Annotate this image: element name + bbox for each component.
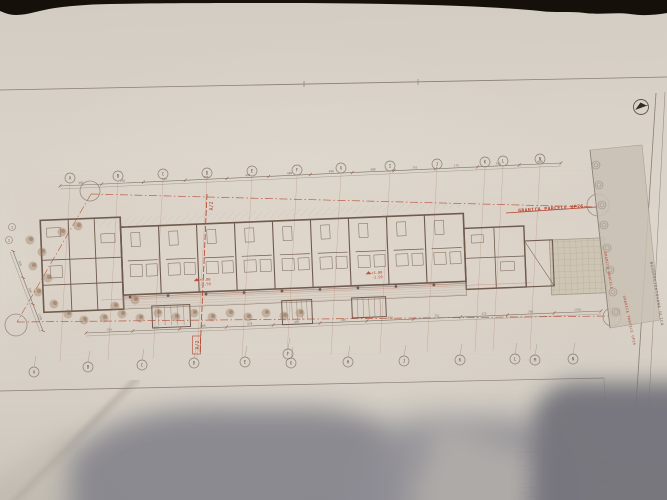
level-down-text: -1.50 — [200, 282, 211, 286]
unit-partition-wall — [386, 217, 389, 285]
line — [86, 311, 601, 333]
grid-line — [108, 182, 118, 360]
dim-number: 488 — [370, 167, 376, 171]
room-wall — [128, 260, 158, 261]
stair-step — [357, 298, 358, 318]
axis-stub — [88, 351, 90, 362]
stair-step — [292, 300, 293, 320]
parcel-boundary-label: GRANICA PARCELE UP26 — [506, 204, 596, 215]
sidewalk-hatch-band — [95, 201, 460, 227]
dim-number: 751 — [412, 165, 418, 169]
grid-line — [427, 170, 437, 352]
axis-stub — [535, 344, 537, 355]
bed-symbol — [321, 225, 331, 239]
room-wall — [280, 254, 310, 255]
bed-symbol — [207, 229, 217, 243]
axis-label-bottom: G — [290, 361, 293, 366]
north-arrow-icon — [634, 100, 649, 115]
dim-number: 490 — [294, 320, 300, 324]
bathroom — [358, 255, 370, 267]
dim-number: 350 — [78, 181, 84, 185]
tree-symbol — [61, 229, 65, 233]
axis-label-bottom: N — [572, 357, 575, 362]
axis-label-top: L — [502, 159, 505, 164]
tree-symbol — [134, 297, 138, 301]
room-wall — [166, 258, 196, 259]
bathroom — [168, 263, 180, 275]
tree-symbol — [32, 263, 36, 267]
axis-label-bottom: B — [87, 365, 90, 370]
tree-symbol — [37, 289, 41, 293]
grid-line — [287, 176, 297, 356]
dim-tick — [21, 276, 25, 280]
room-wall — [356, 251, 386, 252]
axis-stub — [404, 345, 406, 356]
tree-symbol — [283, 313, 287, 317]
dim-number: 1750 — [574, 308, 581, 312]
stair-step — [183, 305, 184, 325]
axis-label-top: B — [117, 174, 120, 179]
axis-stub — [515, 343, 517, 354]
tree-symbol — [121, 311, 125, 315]
column — [167, 294, 170, 297]
room-wall — [242, 255, 272, 256]
bathroom — [244, 260, 256, 272]
section-label-bottom: A/2 — [195, 340, 201, 349]
column — [319, 288, 322, 291]
hand-shadow-right — [533, 382, 667, 500]
bathroom — [298, 258, 309, 270]
bathroom — [336, 256, 347, 268]
stair-step — [307, 300, 308, 320]
axis-label-bottom: L — [514, 357, 517, 362]
photo-of-plan: 3507504934884904884904887511757569887504… — [0, 0, 667, 500]
stair-step — [164, 305, 165, 325]
bed-symbol — [131, 232, 141, 246]
dim-number: 978 — [388, 316, 394, 320]
axis-label-top: G — [340, 166, 343, 171]
axis-stub — [573, 343, 575, 354]
dim-number: 750 — [120, 179, 126, 183]
unit-partition-wall — [424, 215, 427, 283]
bed-symbol — [169, 231, 179, 245]
bed-symbol — [359, 223, 369, 237]
bed-symbol — [435, 220, 445, 234]
section-label-top: A/2 — [209, 201, 215, 210]
dim-number: 380 — [27, 287, 33, 293]
dim-number: 175 — [481, 312, 487, 316]
column — [281, 290, 284, 293]
column — [205, 293, 208, 296]
axis-stub — [34, 356, 36, 367]
axis-label-top: C — [162, 172, 165, 177]
dim-number: 978 — [247, 322, 253, 326]
level-marker-1: +1.00 -1.50 — [194, 278, 211, 287]
axis-label-top: K — [484, 160, 487, 165]
stair-step — [374, 297, 375, 317]
grid-line — [242, 177, 252, 357]
axis-label-top: J — [436, 162, 439, 167]
axis-label-bottom: M — [534, 358, 537, 363]
tree-symbol — [77, 223, 81, 227]
tree-symbol — [29, 237, 33, 241]
axis-label-bottom: F — [287, 352, 290, 357]
tree-symbol — [265, 310, 269, 314]
line — [60, 166, 561, 189]
dim-tick — [11, 249, 15, 253]
dim-number: 175 — [454, 163, 460, 167]
tree-symbol — [229, 310, 233, 314]
stair-step — [363, 298, 364, 318]
room-wall — [318, 252, 348, 253]
stair-step — [369, 297, 370, 317]
stair-step — [380, 297, 381, 317]
dim-number: 488 — [287, 171, 293, 175]
dim-number: 490 — [329, 169, 335, 173]
dim-number: 756 — [528, 310, 534, 314]
tree-symbol — [193, 310, 197, 314]
axis-label-left: 1 — [11, 225, 13, 229]
tree-symbol — [41, 249, 45, 253]
room-wall — [432, 248, 462, 249]
grid-line — [153, 180, 163, 359]
bathroom — [206, 261, 218, 273]
level-marker-2: +1.00 -1.50 — [366, 271, 383, 280]
bed-symbol — [245, 228, 255, 242]
tree-symbol — [47, 275, 51, 279]
tree-symbol — [157, 310, 161, 314]
axis-stub — [288, 338, 290, 349]
bathroom — [396, 254, 408, 266]
dim-number: 751 — [434, 314, 440, 318]
dim-number: 750 — [107, 328, 113, 332]
grid-line — [60, 184, 70, 361]
unit-partition-wall — [272, 221, 275, 289]
grid-line — [530, 165, 540, 350]
dim-tick — [41, 329, 45, 333]
axis-label-bottom: J — [403, 359, 406, 364]
unit-partition-wall — [348, 218, 351, 286]
unit-partition-wall — [196, 224, 199, 292]
bathroom — [260, 259, 271, 271]
grid-line — [493, 167, 503, 351]
dim-number: 488 — [341, 318, 347, 322]
room-wall — [394, 249, 424, 250]
tree-symbol — [83, 317, 87, 321]
bathroom — [434, 252, 446, 264]
axis-label-bottom: E — [244, 360, 247, 365]
tree-symbol — [67, 311, 71, 315]
unit-partition-wall — [310, 220, 313, 288]
bathroom — [184, 262, 195, 274]
axis-stub — [348, 346, 350, 357]
grid-line — [475, 168, 485, 351]
dimension-chain: 7504934889784904889787511757561750 — [84, 307, 602, 336]
tree-symbol — [211, 314, 215, 318]
axis-label-top: A — [69, 176, 72, 181]
column — [433, 284, 436, 287]
bathroom — [374, 255, 385, 267]
background-top-edge — [0, 0, 667, 15]
bathroom — [412, 253, 423, 265]
stair-step — [171, 305, 172, 325]
bed-symbol — [397, 222, 407, 236]
right-unit-interior — [464, 226, 526, 289]
axis-label-bottom: K — [459, 358, 462, 363]
axis-label-top: F — [296, 168, 299, 173]
tree-symbol — [139, 315, 143, 319]
tree-symbol — [103, 315, 107, 319]
axis-label-top: I — [389, 164, 392, 169]
axis-label-top: E — [251, 169, 254, 174]
bathroom — [146, 264, 157, 276]
axis-label-bottom: D — [193, 361, 196, 366]
landscape-trees — [26, 222, 305, 325]
axis-label-bottom: A — [33, 370, 36, 375]
axis-label-left: 2 — [8, 238, 10, 242]
bathroom — [450, 252, 461, 264]
column — [395, 285, 398, 288]
axis-stub — [460, 344, 462, 355]
dimension-chain: 350750493488490488490488751175756988 — [58, 159, 562, 189]
tree-symbol — [175, 314, 179, 318]
level-down-text: -1.50 — [372, 275, 383, 279]
axis-stub — [142, 349, 144, 360]
dim-number: 620 — [17, 260, 23, 266]
room-wall — [204, 257, 234, 258]
bathroom — [130, 264, 142, 276]
tree-symbol — [114, 303, 118, 307]
bathroom — [320, 257, 332, 269]
grid-lines — [34, 165, 575, 367]
dim-tick — [31, 302, 35, 306]
axis-label-bottom: H — [347, 360, 350, 365]
bathroom — [222, 261, 233, 273]
axis-label-bottom: C — [141, 363, 144, 368]
column — [357, 287, 360, 290]
tree-symbol — [53, 301, 57, 305]
unit-partition-wall — [234, 223, 237, 291]
tree-symbol — [299, 310, 303, 314]
axis-stub — [245, 346, 247, 357]
tree-symbol — [247, 314, 251, 318]
column — [243, 291, 246, 294]
bed-symbol — [283, 226, 293, 240]
